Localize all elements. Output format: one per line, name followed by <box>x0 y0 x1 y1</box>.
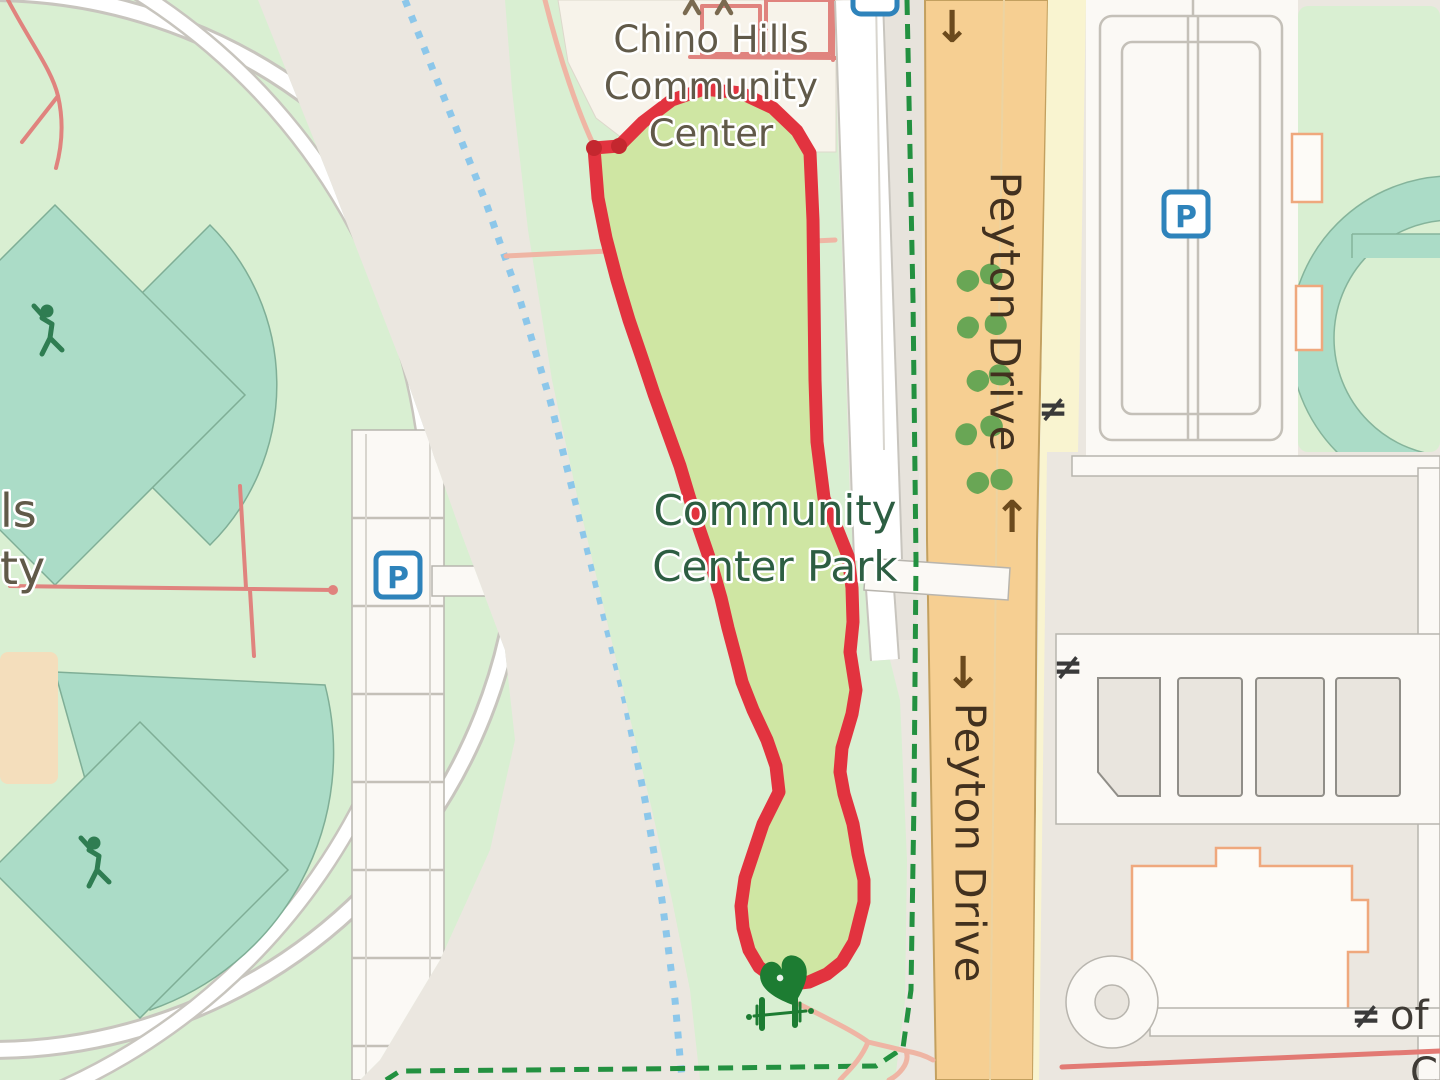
edge-label-ls: ls <box>0 484 37 538</box>
building-small-1 <box>1292 134 1322 202</box>
cross-road <box>1072 456 1440 476</box>
community-center-label-line1: Chino Hills <box>613 18 808 61</box>
road-verge-top <box>1040 0 1086 452</box>
park-label-line1: Community <box>653 486 896 535</box>
edge-label-of: of <box>1390 993 1429 1039</box>
community-center-label-line3: Center <box>649 112 774 155</box>
parking-cell-3 <box>1256 678 1324 796</box>
edge-label-ty: ty <box>0 541 45 595</box>
oneway-arrow-up-mid: ↑ <box>994 492 1031 543</box>
parking-icon-left: P <box>376 553 420 597</box>
map-svg[interactable]: P ls ty <box>0 0 1440 1080</box>
edge-label-c: C <box>1410 1050 1438 1080</box>
parking-cell-2 <box>1178 678 1242 796</box>
gate-icon-2: ≠ <box>1053 647 1083 688</box>
park-label-line2: Center Park <box>652 542 898 591</box>
community-center-label-line2: Community <box>604 65 818 108</box>
parking-cell-1 <box>1098 678 1160 796</box>
parking-letter-2: P <box>1175 200 1197 235</box>
street-label-peyton-1: Peyton Drive <box>981 172 1030 453</box>
parking-icon-top-partial <box>853 0 897 14</box>
parking-cell-4 <box>1336 678 1400 796</box>
oneway-arrow-down-mid: ↓ <box>945 648 982 699</box>
parking-icon-right: P <box>1164 192 1208 236</box>
route-start-marker <box>586 140 602 156</box>
parking-letter: P <box>387 561 409 596</box>
infield-area <box>0 652 58 784</box>
route-start-marker <box>611 138 627 154</box>
gate-icon-1: ≠ <box>1038 389 1068 430</box>
building-small-2 <box>1296 286 1322 350</box>
oneway-arrow-down-top: ↓ <box>934 2 971 53</box>
service-road <box>859 0 878 560</box>
map-canvas[interactable]: P ls ty <box>0 0 1440 1080</box>
footpath-node <box>328 585 338 595</box>
building-large <box>1132 848 1368 1034</box>
gate-icon-3: ≠ <box>1351 996 1381 1037</box>
street-label-peyton-2: Peyton Drive <box>946 703 995 984</box>
roundabout-island <box>1095 985 1129 1019</box>
